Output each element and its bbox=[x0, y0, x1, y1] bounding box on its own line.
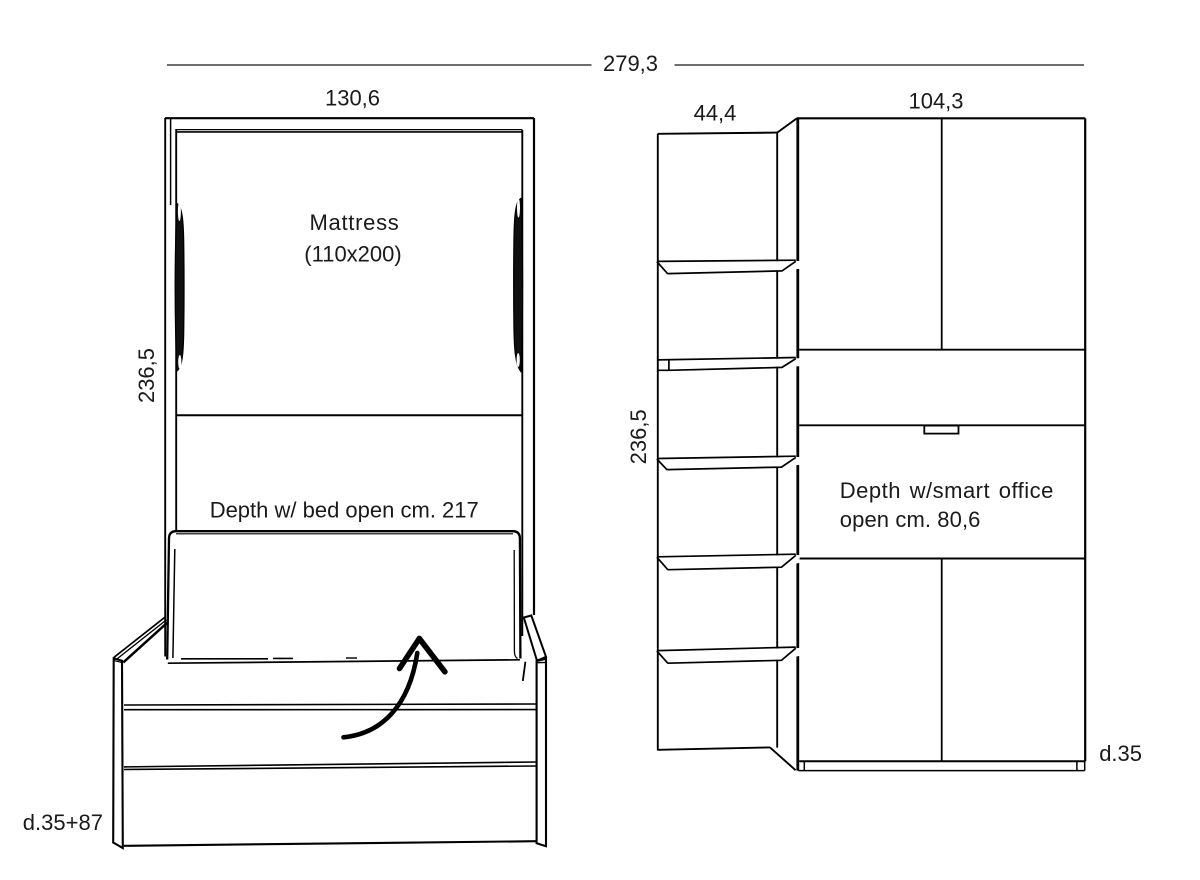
svg-text:(110x200): (110x200) bbox=[304, 241, 401, 266]
svg-text:130,6: 130,6 bbox=[325, 86, 380, 111]
svg-text:d.35: d.35 bbox=[1099, 741, 1142, 766]
svg-text:279,3: 279,3 bbox=[603, 51, 658, 76]
svg-text:236,5: 236,5 bbox=[134, 348, 159, 403]
svg-text:44,4: 44,4 bbox=[694, 101, 737, 126]
svg-text:104,3: 104,3 bbox=[908, 88, 963, 113]
svg-text:open cm. 80,6: open cm. 80,6 bbox=[840, 507, 981, 532]
svg-text:d.35+87: d.35+87 bbox=[23, 810, 103, 835]
svg-text:Mattress: Mattress bbox=[310, 210, 400, 235]
svg-text:236,5: 236,5 bbox=[626, 409, 651, 464]
svg-text:Depth w/smart office: Depth w/smart office bbox=[840, 478, 1054, 503]
svg-text:Depth w/ bed open cm. 217: Depth w/ bed open cm. 217 bbox=[210, 497, 479, 522]
